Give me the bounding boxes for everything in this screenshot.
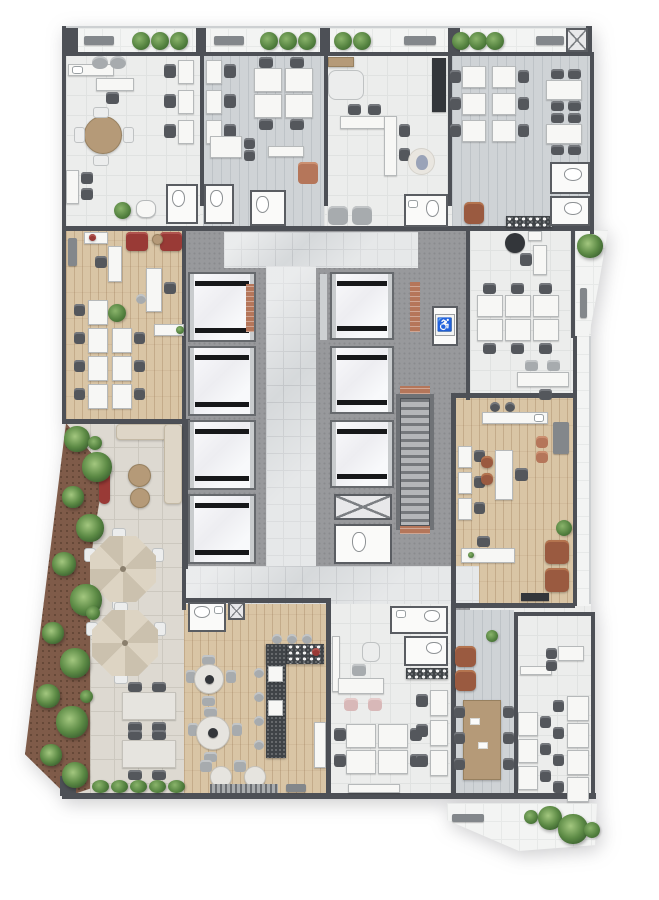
- office-chair: [290, 119, 304, 130]
- office-chair: [503, 758, 514, 770]
- dining-chair: [93, 155, 109, 166]
- plant: [114, 202, 131, 219]
- bar-stool: [254, 668, 264, 678]
- plant: [556, 520, 572, 536]
- table-decor: [208, 728, 218, 738]
- toilet: [564, 168, 582, 181]
- hedge-bush: [168, 780, 185, 793]
- workstation-desk: [88, 328, 108, 353]
- garden-tree: [52, 552, 76, 576]
- toilet: [194, 606, 210, 618]
- balcony-east-rail: [589, 336, 591, 604]
- wall-left: [62, 52, 66, 424]
- armchair: [455, 670, 476, 691]
- office-chair: [540, 770, 551, 782]
- coffee-counter: [506, 216, 552, 227]
- workstation-desk: [430, 720, 448, 746]
- balcony-plant: [132, 32, 150, 50]
- workstation-desk: [206, 90, 222, 114]
- office-chair: [483, 283, 496, 294]
- sink: [534, 414, 544, 422]
- wood-counter: [328, 57, 354, 67]
- office-chair: [81, 188, 93, 200]
- workstation-desk: [346, 750, 376, 774]
- workstation-desk: [178, 120, 194, 144]
- wall-right-top: [590, 52, 594, 234]
- workstation-desk: [533, 295, 559, 317]
- armchair: [362, 642, 380, 662]
- office-chair: [74, 388, 85, 400]
- office-chair: [450, 70, 461, 83]
- office-chair: [553, 727, 564, 739]
- toilet: [256, 196, 269, 213]
- office-chair: [520, 253, 532, 266]
- office-chair: [259, 119, 273, 130]
- office-chair: [259, 57, 273, 68]
- office-chair: [539, 283, 552, 294]
- desk: [96, 78, 134, 91]
- workstation-desk: [492, 120, 516, 142]
- armchair: [464, 202, 484, 224]
- wall-i-north: [455, 393, 575, 398]
- office-chair: [568, 69, 581, 79]
- garden-tree: [62, 486, 84, 508]
- workstation-desk: [533, 319, 559, 341]
- tall-cabinet: [432, 58, 446, 112]
- garden-bush: [80, 690, 93, 703]
- outdoor-chair: [152, 682, 166, 692]
- coffee-table: [130, 488, 150, 508]
- balcony-bench: [214, 36, 244, 45]
- garden-tree: [60, 648, 90, 678]
- workstation-desk: [88, 384, 108, 409]
- balcony-bench: [536, 36, 564, 45]
- guest-chair: [344, 698, 358, 711]
- stair-flight: [400, 398, 430, 526]
- paper-sheet: [470, 718, 480, 725]
- workstation-desk: [567, 750, 589, 775]
- workstation-desk: [477, 295, 503, 317]
- guest-chair: [547, 360, 560, 371]
- outdoor-chair: [128, 770, 142, 780]
- armchair: [545, 568, 569, 592]
- meeting-table-round: [84, 116, 122, 154]
- office-chair: [539, 389, 552, 400]
- toilet: [172, 190, 185, 207]
- desk: [384, 116, 397, 176]
- workstation-desk: [458, 446, 472, 468]
- workstation-desk: [88, 356, 108, 381]
- office-chair: [348, 104, 361, 115]
- balcony-plant: [151, 32, 169, 50]
- garden-tree: [42, 622, 64, 644]
- office-chair: [74, 360, 85, 372]
- stool: [136, 294, 146, 304]
- outdoor-table: [122, 740, 176, 768]
- workstation-desk: [462, 66, 486, 88]
- balcony-plant: [584, 822, 600, 838]
- parasol: [92, 610, 158, 676]
- workstation-desk: [518, 766, 538, 790]
- coffee-machine: [89, 234, 96, 241]
- office-chair: [164, 94, 176, 108]
- workstation-desk: [505, 319, 531, 341]
- desk: [210, 136, 242, 158]
- office-chair: [450, 97, 461, 110]
- office-chair: [368, 104, 381, 115]
- office-chair: [568, 113, 581, 123]
- office-chair: [224, 64, 236, 78]
- workstation-desk: [458, 498, 472, 520]
- plant: [176, 326, 184, 334]
- guest-chair: [536, 436, 548, 448]
- wall-mid-left: [62, 226, 184, 231]
- outdoor-chair: [152, 770, 166, 780]
- office-chair: [74, 304, 85, 316]
- meeting-table: [546, 124, 582, 144]
- plant: [486, 630, 498, 642]
- cafe-chair: [226, 670, 236, 683]
- balcony-plant: [469, 32, 487, 50]
- paper-sheet: [478, 742, 488, 749]
- office-chair: [551, 101, 564, 111]
- duct-shaft: [334, 494, 392, 520]
- office-chair: [511, 283, 524, 294]
- lounge-chair: [92, 56, 108, 69]
- office-chair: [74, 332, 85, 344]
- workstation-desk: [458, 472, 472, 494]
- balcony-plant: [279, 32, 297, 50]
- cabinet: [553, 422, 569, 454]
- office-chair: [95, 256, 107, 268]
- workstation-desk: [254, 68, 282, 92]
- desk: [533, 245, 547, 275]
- outdoor-table: [122, 692, 176, 720]
- coffee-cabinet: [84, 232, 108, 244]
- armchair: [455, 646, 476, 667]
- office-chair: [553, 754, 564, 766]
- workstation-desk: [430, 690, 448, 716]
- workstation-desk: [567, 723, 589, 748]
- office-chair: [518, 97, 529, 110]
- sink: [72, 66, 83, 74]
- workstation-desk: [567, 777, 589, 802]
- office-chair: [515, 468, 528, 481]
- office-chair: [164, 282, 176, 294]
- security-turnstile: [521, 593, 549, 601]
- workstation-desk: [378, 724, 408, 748]
- office-chair: [546, 660, 557, 671]
- wall-right-bottom: [591, 612, 595, 798]
- sideboard: [528, 231, 542, 241]
- daybed: [328, 70, 364, 100]
- dining-chair: [74, 127, 85, 143]
- cafe-chair: [232, 723, 242, 736]
- armchair: [160, 232, 182, 251]
- garden-tree: [82, 452, 112, 482]
- lobby-top-floor: [224, 232, 418, 268]
- office-chair: [416, 694, 428, 707]
- dining-chair: [93, 107, 109, 118]
- wall-bench: [68, 238, 77, 266]
- wall-bottom-west: [62, 793, 334, 799]
- duct-shaft: [566, 28, 588, 52]
- dining-chair: [123, 127, 134, 143]
- standing-cabinet: [108, 246, 122, 282]
- bar-stool: [254, 692, 264, 702]
- office-chair: [134, 388, 145, 400]
- kitchen-counter: [314, 722, 326, 768]
- balcony-plant: [260, 32, 278, 50]
- wc-room: [404, 636, 448, 666]
- desk: [517, 372, 569, 387]
- office-chair: [334, 728, 346, 741]
- workstation-desk: [178, 60, 194, 84]
- coffee-counter: [406, 668, 448, 679]
- office-chair: [553, 700, 564, 712]
- workstation-desk: [254, 94, 282, 118]
- stool: [505, 402, 515, 412]
- guest-chair: [368, 698, 382, 711]
- office-chair: [540, 743, 551, 755]
- workstation-desk: [567, 696, 589, 721]
- office-chair: [164, 64, 176, 78]
- table-decor: [205, 675, 214, 684]
- office-chair: [399, 124, 410, 137]
- balcony-plant: [334, 32, 352, 50]
- workstation-desk: [112, 328, 132, 353]
- office-chair: [551, 69, 564, 79]
- hedge-bush: [130, 780, 147, 793]
- office-chair: [334, 754, 346, 767]
- workstation-desk: [88, 300, 108, 325]
- workstation-desk: [112, 384, 132, 409]
- doormat: [210, 784, 278, 793]
- armchair: [328, 206, 348, 225]
- bar-stool: [272, 634, 282, 644]
- side-table: [136, 200, 156, 218]
- office-chair: [551, 145, 564, 155]
- workstation-desk: [505, 295, 531, 317]
- balcony-bench: [452, 814, 484, 822]
- outdoor-chair: [128, 682, 142, 692]
- balcony-plant: [524, 810, 538, 824]
- office-chair: [164, 124, 176, 138]
- meeting-table-wood: [463, 700, 501, 780]
- office-chair: [454, 706, 465, 718]
- hedge-bush: [149, 780, 166, 793]
- office-chair: [454, 732, 465, 744]
- workstation-desk: [492, 93, 516, 115]
- garden-bush: [88, 436, 102, 450]
- reception-desk: [146, 268, 162, 312]
- toilet: [210, 190, 223, 207]
- cafe-chair: [202, 696, 215, 706]
- office-chair: [539, 343, 552, 354]
- desk: [558, 646, 584, 661]
- meeting-table: [546, 80, 582, 100]
- guest-chair: [481, 456, 493, 468]
- office-chair: [454, 758, 465, 770]
- office-chair: [290, 57, 304, 68]
- logo-badge: [468, 552, 474, 558]
- armchair: [352, 206, 372, 225]
- guest-chair: [481, 473, 493, 485]
- toilet: [424, 610, 440, 622]
- garden-tree: [56, 706, 88, 738]
- balcony-bench: [404, 36, 436, 45]
- duct-shaft: [228, 602, 245, 620]
- bar-stool: [254, 740, 264, 750]
- elevator-cabin: [330, 346, 394, 414]
- bar-stool: [254, 716, 264, 726]
- bar-appliance: [268, 666, 283, 682]
- elevator-cabin: [330, 272, 394, 340]
- floorplan-stage: ♿: [0, 0, 659, 900]
- workstation-desk: [518, 712, 538, 736]
- desk: [340, 116, 386, 129]
- garden-tree: [40, 744, 62, 766]
- office-chair: [518, 124, 529, 137]
- office-chair: [244, 150, 255, 161]
- coffee-table: [128, 464, 151, 487]
- elevator-cabin: [188, 494, 256, 564]
- guest-chair: [536, 451, 548, 463]
- workstation-desk: [346, 724, 376, 748]
- floorplan-canvas: ♿: [0, 0, 659, 900]
- guest-chair: [525, 360, 538, 371]
- outdoor-chair: [152, 730, 166, 740]
- office-chair: [134, 360, 145, 372]
- elevator-cabin: [188, 346, 256, 416]
- pastry-item: [312, 648, 320, 656]
- wall-e-east: [571, 230, 575, 338]
- toilet: [564, 202, 582, 215]
- workstation-desk: [462, 120, 486, 142]
- side-table: [152, 234, 163, 245]
- wall-i-south: [455, 603, 575, 608]
- wall-i-east: [573, 336, 577, 606]
- office-chair: [518, 70, 529, 83]
- sofa: [164, 424, 182, 504]
- corridor-floor: [266, 266, 316, 568]
- office-chair: [416, 724, 428, 737]
- armchair: [126, 232, 148, 251]
- exec-desk: [495, 450, 513, 500]
- sink: [408, 200, 418, 208]
- exec-desk: [338, 678, 384, 694]
- wall-cafe-suite: [326, 598, 331, 797]
- office-chair: [106, 92, 119, 104]
- side-table-dark: [505, 233, 525, 253]
- stool: [490, 402, 500, 412]
- sink: [214, 606, 223, 614]
- balcony-plant: [170, 32, 188, 50]
- garden-tree: [36, 684, 60, 708]
- office-chair: [511, 343, 524, 354]
- toilet: [426, 642, 442, 654]
- workstation-desk: [285, 94, 313, 118]
- hedge-bush: [111, 780, 128, 793]
- workstation-desk: [378, 750, 408, 774]
- sideboard: [268, 146, 304, 157]
- office-chair: [546, 648, 557, 659]
- stair-landing: [400, 526, 430, 534]
- balcony-plant: [353, 32, 371, 50]
- balcony-plant: [452, 32, 470, 50]
- wall-top: [62, 52, 594, 56]
- plant: [108, 304, 126, 322]
- credenza: [348, 784, 400, 793]
- wheelchair-accessible-icon: ♿: [435, 314, 455, 336]
- office-chair: [224, 94, 236, 108]
- office-chair: [553, 781, 564, 793]
- workstation-desk: [477, 319, 503, 341]
- workstation-desk: [430, 750, 448, 776]
- office-chair: [352, 664, 366, 676]
- desk: [66, 170, 79, 204]
- office-chair: [540, 716, 551, 728]
- office-chair: [81, 172, 93, 184]
- garden-bush: [86, 606, 100, 620]
- office-chair: [416, 754, 428, 767]
- wall-bottom-east: [330, 793, 596, 799]
- core-wall-right: [466, 226, 470, 400]
- elevator-shaft-panel: [320, 274, 327, 340]
- elevator-cabin: [188, 420, 256, 490]
- balcony-plant: [486, 32, 504, 50]
- office-chair: [503, 732, 514, 744]
- workstation-desk: [492, 66, 516, 88]
- office-chair: [450, 124, 461, 137]
- office-chair: [483, 343, 496, 354]
- teddy-bear: [416, 155, 428, 170]
- lounge-chair: [110, 56, 126, 69]
- office-chair: [244, 138, 255, 149]
- balcony-tree: [577, 234, 603, 258]
- office-chair: [568, 145, 581, 155]
- toilet: [352, 532, 366, 552]
- office-chair: [551, 113, 564, 123]
- workstation-desk: [206, 60, 222, 84]
- garden-tree: [76, 514, 104, 542]
- office-chair: [503, 706, 514, 718]
- balcony-bench: [84, 36, 114, 45]
- cafe-chair: [234, 760, 246, 772]
- balcony-rail: [66, 26, 586, 28]
- bar-stool: [287, 634, 297, 644]
- office-chair: [134, 332, 145, 344]
- office-chair: [477, 536, 490, 547]
- workstation-desk: [518, 739, 538, 763]
- workstation-desk: [112, 356, 132, 381]
- bench: [286, 784, 306, 792]
- outdoor-chair: [128, 730, 142, 740]
- sink: [396, 610, 406, 618]
- elevator-cabin: [330, 420, 394, 488]
- armchair: [545, 540, 569, 564]
- garden-tree: [64, 426, 90, 452]
- bar-appliance: [268, 700, 283, 716]
- workstation-desk: [285, 68, 313, 92]
- cafe-chair: [200, 760, 212, 772]
- workstation-desk: [178, 90, 194, 114]
- terracotta-accent: [410, 282, 420, 332]
- stair-landing: [400, 386, 430, 394]
- toilet: [426, 200, 439, 217]
- hedge-bush: [92, 780, 109, 793]
- office-chair: [568, 101, 581, 111]
